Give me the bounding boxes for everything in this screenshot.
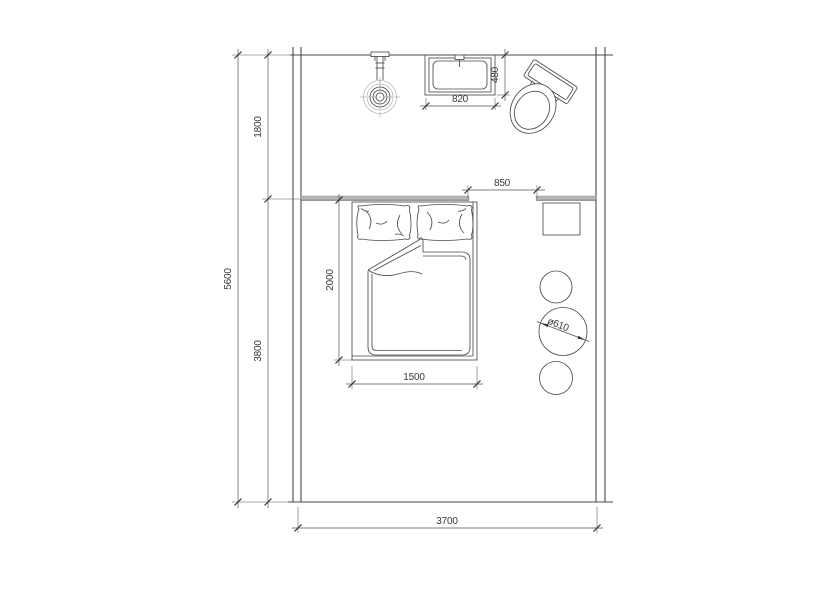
floor-plan-canvas: 5600 1800 3800 3700 2000 [0,0,837,592]
pillow-right-icon [417,205,473,241]
dim-basin-width-label: 820 [452,94,469,105]
dim-total-depth: 5600 [223,49,242,508]
dim-room-width-label: 3700 [436,516,458,527]
dim-bed-length-label: 2000 [325,269,336,291]
duvet-icon [368,238,470,355]
dim-basin-depth: 480 [490,49,509,101]
double-bed [352,202,477,360]
dim-table-diameter-label: ø610 [546,316,571,334]
partition-wall [301,196,596,200]
dim-zone-depths: 1800 3800 [253,49,272,508]
stool-top-icon [540,271,572,303]
dim-room-width: 3700 [292,516,603,532]
wash-basin-icon [425,55,495,95]
dim-opening-label: 850 [494,178,511,189]
dim-basin-width: 820 [420,94,501,110]
dim-table-diameter: ø610 [537,316,589,341]
dim-sleep-zone-label: 3800 [253,340,264,362]
duvet-fold-edge [368,240,419,270]
pillow-left-icon [357,205,411,241]
stool-bottom-icon [540,362,573,395]
dim-bed-width-label: 1500 [403,372,425,383]
dim-bed-length: 2000 [325,194,343,366]
floor-plan-drawing: 5600 1800 3800 3700 2000 [0,0,837,592]
basin-faucet [455,55,464,60]
dim-basin-depth-label: 480 [490,66,501,83]
dim-bed-width: 1500 [346,372,483,388]
partition-right-segment [536,196,596,199]
partition-left-segment [301,196,469,199]
dim-bath-zone-label: 1800 [253,116,264,138]
dim-total-depth-label: 5600 [223,268,234,290]
toilet-icon [497,59,578,144]
dim-opening: 850 [462,178,545,194]
walls [288,47,613,502]
bedside-table-icon [543,203,580,235]
basin-bowl [433,61,487,89]
shower-head-icon [360,52,400,117]
shower-bracket [371,52,389,57]
